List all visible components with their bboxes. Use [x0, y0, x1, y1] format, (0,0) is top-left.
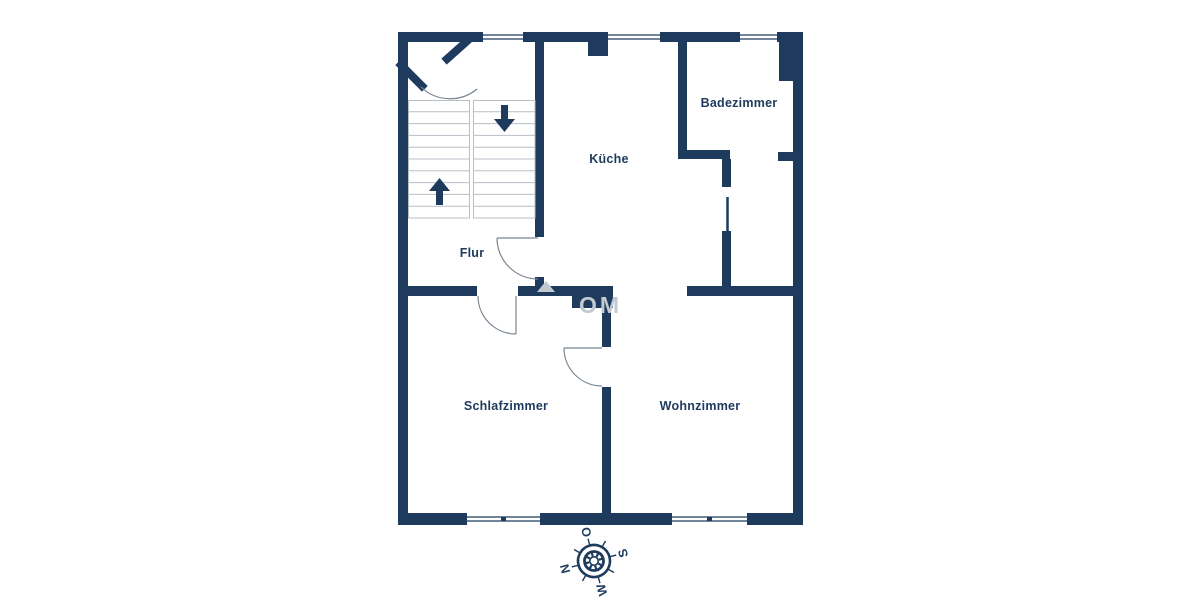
door-flur-kueche [497, 238, 538, 279]
compass-rose-icon: N O S W [550, 517, 640, 600]
window-bottom-wohnzimmer [672, 517, 747, 521]
window-bottom-schlafzimmer [467, 517, 540, 521]
door-schlafzimmer-wohnzimmer [564, 348, 602, 386]
compass-east-label: O [579, 525, 595, 538]
room-label-schlafzimmer: Schlafzimmer [464, 399, 548, 413]
window-top-badezimmer [740, 35, 777, 39]
room-label-wohnzimmer: Wohnzimmer [660, 399, 741, 413]
room-label-kueche: Küche [589, 152, 628, 166]
door-flur-schlafzimmer [478, 296, 516, 334]
watermark-text: OM [579, 292, 622, 319]
staircase [409, 101, 536, 219]
floorplan-canvas: N O S W Küche Badezimmer Flur Schlafzimm… [0, 0, 1200, 600]
compass-west-label: W [594, 582, 611, 597]
door-arc-entry [421, 87, 477, 99]
window-top-stairwell [483, 35, 523, 39]
room-label-badezimmer: Badezimmer [701, 96, 778, 110]
room-label-flur: Flur [460, 246, 485, 260]
watermark-house-icon [537, 281, 555, 292]
entry-door-leaf [447, 42, 466, 59]
compass-north-label: N [557, 562, 573, 574]
compass-south-label: S [615, 547, 631, 559]
window-top-kueche [608, 35, 660, 39]
